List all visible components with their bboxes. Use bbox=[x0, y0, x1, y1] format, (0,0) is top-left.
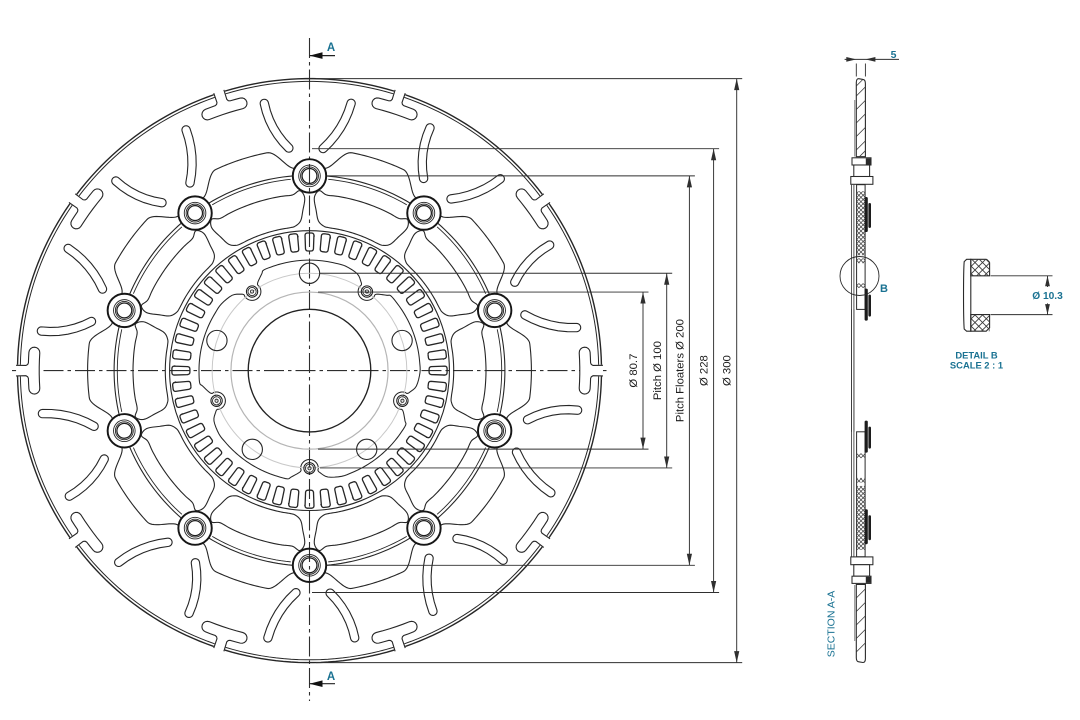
svg-text:SECTION A-A: SECTION A-A bbox=[826, 591, 838, 658]
svg-text:5: 5 bbox=[891, 49, 897, 61]
svg-text:A: A bbox=[327, 42, 335, 54]
svg-text:Pitch Ø 100: Pitch Ø 100 bbox=[652, 341, 664, 400]
svg-text:Pitch Floaters Ø 200: Pitch Floaters Ø 200 bbox=[674, 319, 686, 422]
svg-text:Ø 10.3: Ø 10.3 bbox=[1032, 291, 1063, 302]
svg-text:A: A bbox=[327, 671, 335, 683]
svg-text:B: B bbox=[880, 283, 888, 295]
svg-text:SCALE 2 : 1: SCALE 2 : 1 bbox=[950, 359, 1003, 370]
svg-text:Ø 228: Ø 228 bbox=[699, 355, 711, 386]
svg-text:Ø 80.7: Ø 80.7 bbox=[628, 354, 640, 388]
svg-text:Ø 300: Ø 300 bbox=[722, 355, 734, 386]
